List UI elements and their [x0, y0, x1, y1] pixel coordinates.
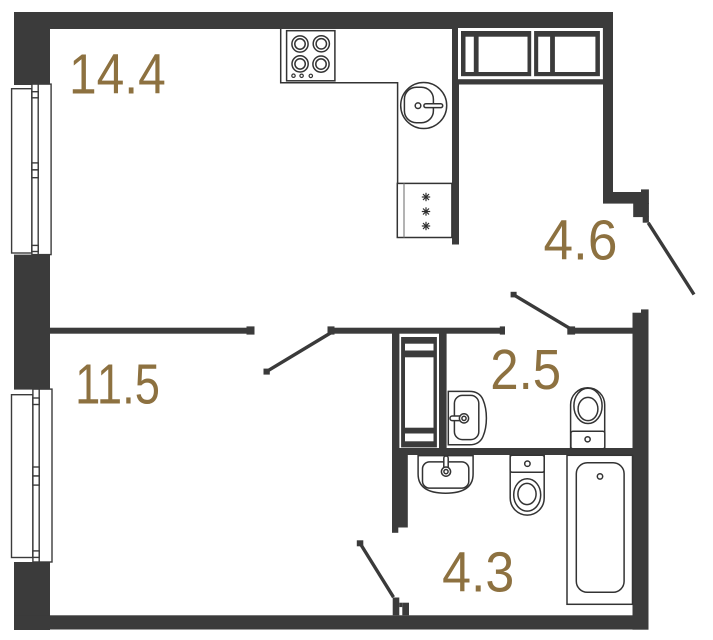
svg-text:2.5: 2.5	[490, 339, 561, 402]
svg-text:4.6: 4.6	[544, 208, 618, 272]
svg-text:14.4: 14.4	[69, 44, 166, 107]
svg-text:11.5: 11.5	[75, 353, 160, 416]
svg-text:4.3: 4.3	[442, 541, 514, 603]
